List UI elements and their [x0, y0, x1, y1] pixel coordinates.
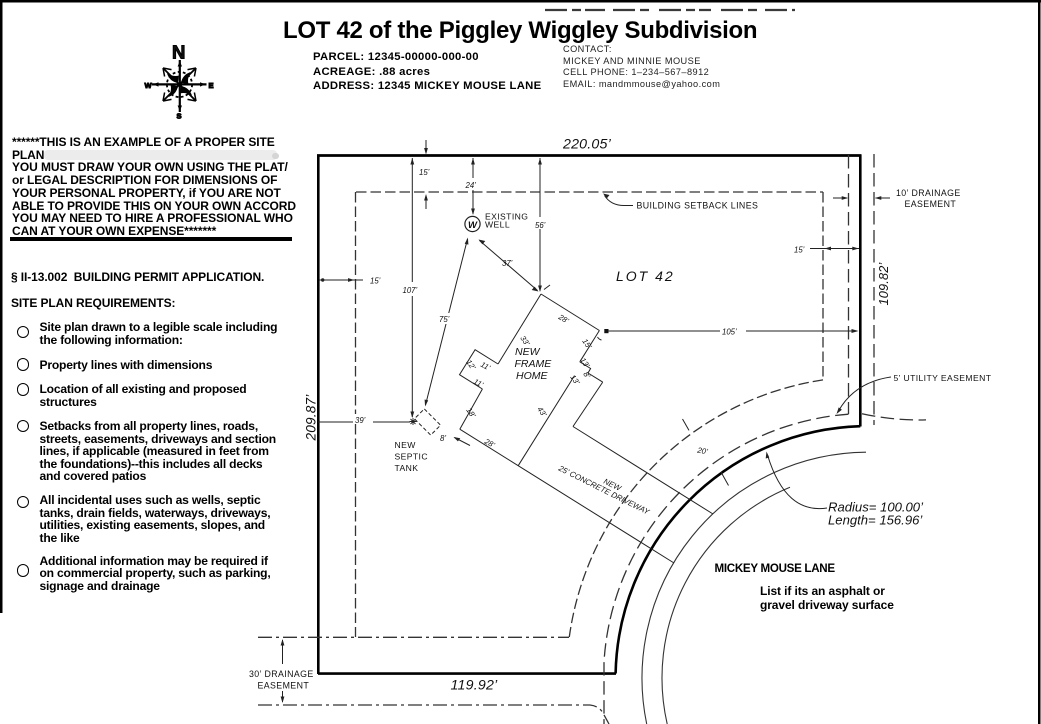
svg-text:HOME: HOME — [516, 370, 548, 382]
svg-text:43’: 43’ — [535, 405, 548, 419]
svg-text:Length= 156.96’: Length= 156.96’ — [828, 513, 923, 528]
svg-text:15’: 15’ — [794, 246, 805, 255]
svg-text:W: W — [145, 81, 153, 90]
svg-text:24’: 24’ — [465, 181, 477, 190]
svg-text:5’ UTILITY EASEMENT: 5’ UTILITY EASEMENT — [894, 373, 992, 383]
svg-text:BUILDING SETBACK LINES: BUILDING SETBACK LINES — [637, 201, 759, 211]
svg-text:28’: 28’ — [482, 436, 496, 449]
svg-text:12’: 12’ — [464, 358, 477, 372]
svg-text:W: W — [468, 220, 478, 231]
svg-text:8’: 8’ — [581, 370, 592, 380]
svg-text:WELL: WELL — [485, 220, 510, 230]
svg-text:105’: 105’ — [722, 328, 737, 337]
svg-text:NEW: NEW — [515, 346, 541, 358]
svg-text:LOT 42: LOT 42 — [616, 268, 675, 284]
svg-text:37’: 37’ — [502, 259, 513, 268]
svg-text:56’: 56’ — [535, 221, 546, 230]
svg-text:13’: 13’ — [568, 373, 581, 387]
svg-text:39’: 39’ — [355, 416, 366, 425]
svg-text:TANK: TANK — [395, 463, 419, 473]
svg-text:15’: 15’ — [370, 277, 381, 286]
svg-text:EASEMENT: EASEMENT — [258, 681, 310, 691]
svg-text:FRAME: FRAME — [515, 358, 553, 370]
svg-text:20’: 20’ — [696, 445, 709, 456]
svg-text:15’: 15’ — [580, 337, 593, 351]
svg-text:N: N — [172, 42, 185, 63]
svg-text:SEPTIC: SEPTIC — [395, 452, 428, 462]
svg-text:11’: 11’ — [472, 377, 485, 390]
svg-text:109.82’: 109.82’ — [877, 262, 891, 305]
svg-text:NEW: NEW — [395, 440, 417, 450]
svg-text:E: E — [209, 81, 214, 90]
svg-text:15’: 15’ — [419, 168, 430, 177]
svg-text:30’ DRAINAGE: 30’ DRAINAGE — [249, 669, 314, 679]
svg-text:75’: 75’ — [439, 315, 450, 324]
svg-text:10’ DRAINAGE: 10’ DRAINAGE — [896, 188, 961, 198]
svg-text:107’: 107’ — [403, 286, 418, 295]
svg-text:220.05’: 220.05’ — [562, 137, 612, 153]
svg-text:25’ CONCRETE DRIVEWAY: 25’ CONCRETE DRIVEWAY — [556, 463, 651, 517]
svg-text:EASEMENT: EASEMENT — [905, 199, 957, 209]
svg-text:11’: 11’ — [479, 360, 492, 373]
svg-text:8’: 8’ — [440, 434, 446, 443]
svg-text:28’: 28’ — [556, 312, 570, 326]
svg-text:119.92’: 119.92’ — [451, 678, 499, 694]
svg-text:209.87’: 209.87’ — [304, 394, 319, 442]
svg-text:S: S — [177, 112, 182, 121]
